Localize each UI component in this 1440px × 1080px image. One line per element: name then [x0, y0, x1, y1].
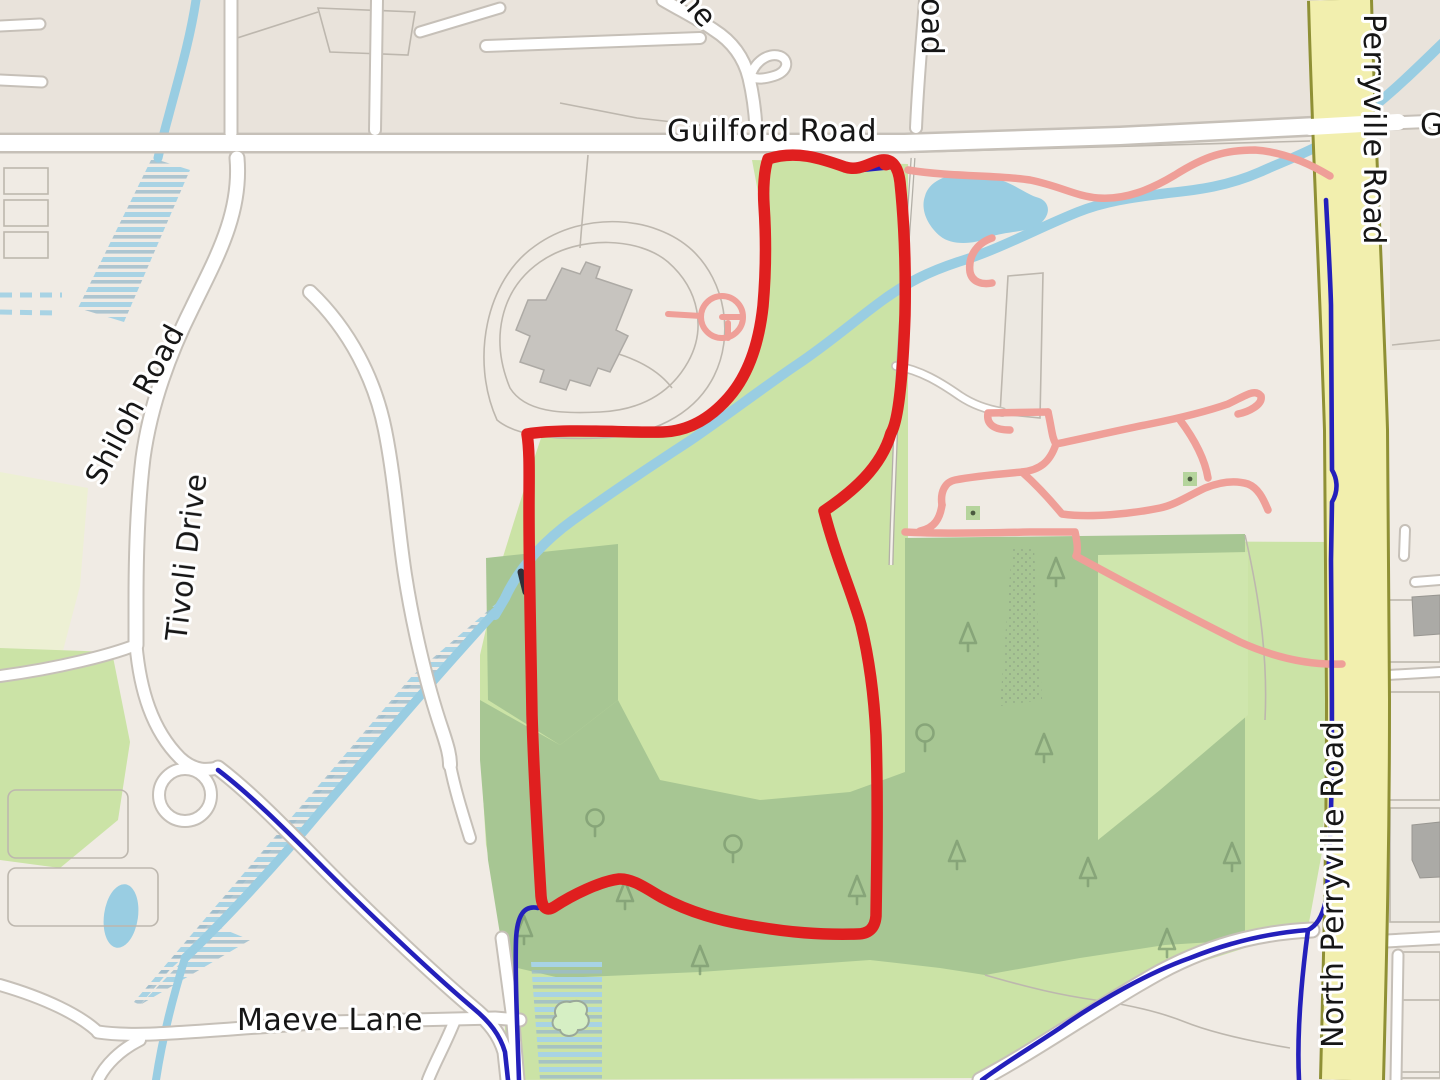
map-view[interactable]: Guilford Road G Perryville Road North Pe…	[0, 0, 1440, 1080]
label-north-perryville-road: North Perryville Road	[1316, 721, 1351, 1048]
label-guilford-road: Guilford Road	[667, 114, 877, 149]
label-road-partial: oad	[914, 0, 949, 55]
building-east-2	[1412, 822, 1440, 878]
field-outline	[1000, 273, 1043, 418]
map-canvas[interactable]: Guilford Road G Perryville Road North Pe…	[0, 0, 1440, 1080]
label-guilford-partial: G	[1420, 108, 1440, 143]
label-perryville-road: Perryville Road	[1356, 14, 1391, 245]
building-east-1	[1412, 595, 1440, 636]
route-start-marker	[879, 156, 894, 171]
label-maeve-lane: Maeve Lane	[237, 1003, 423, 1038]
